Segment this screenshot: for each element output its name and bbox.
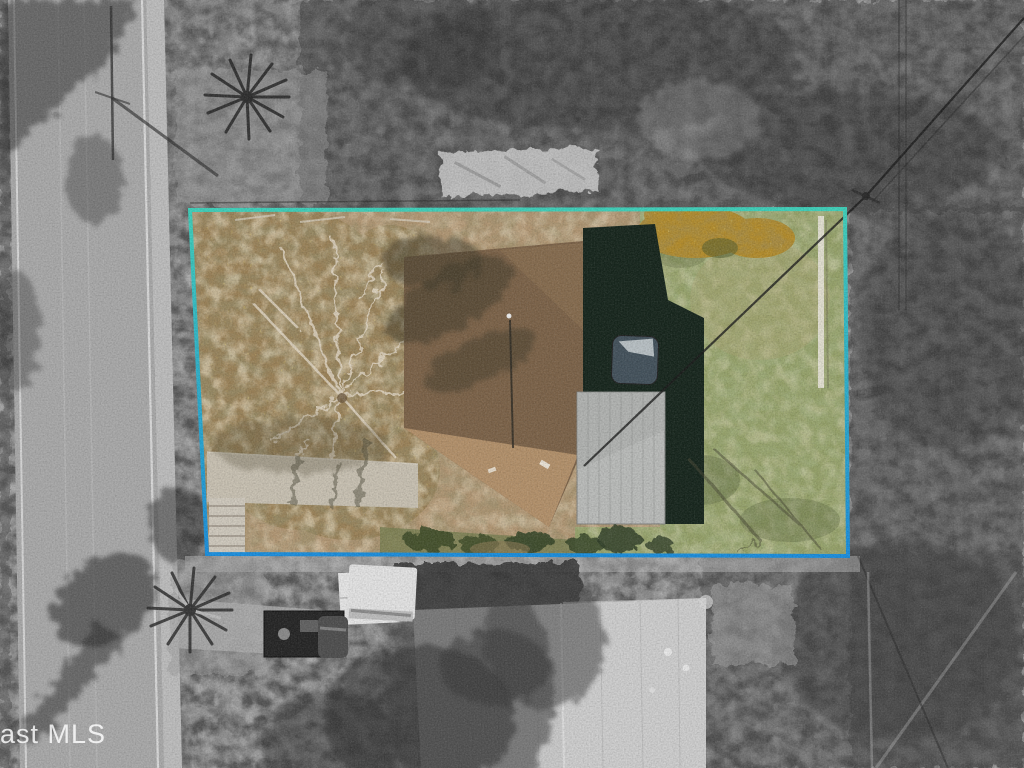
watermark-text: ast MLS (0, 719, 106, 749)
aerial-photo: ast MLS (0, 0, 1024, 768)
photo-grain (0, 0, 1024, 768)
